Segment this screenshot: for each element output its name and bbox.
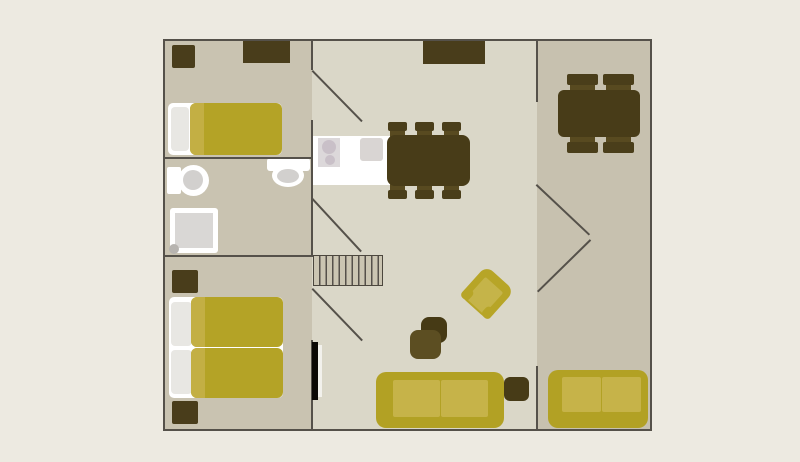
wall-mounted-panel-gap <box>318 345 322 397</box>
floor-plan-canvas <box>0 0 800 462</box>
layer-overlays <box>0 0 800 462</box>
